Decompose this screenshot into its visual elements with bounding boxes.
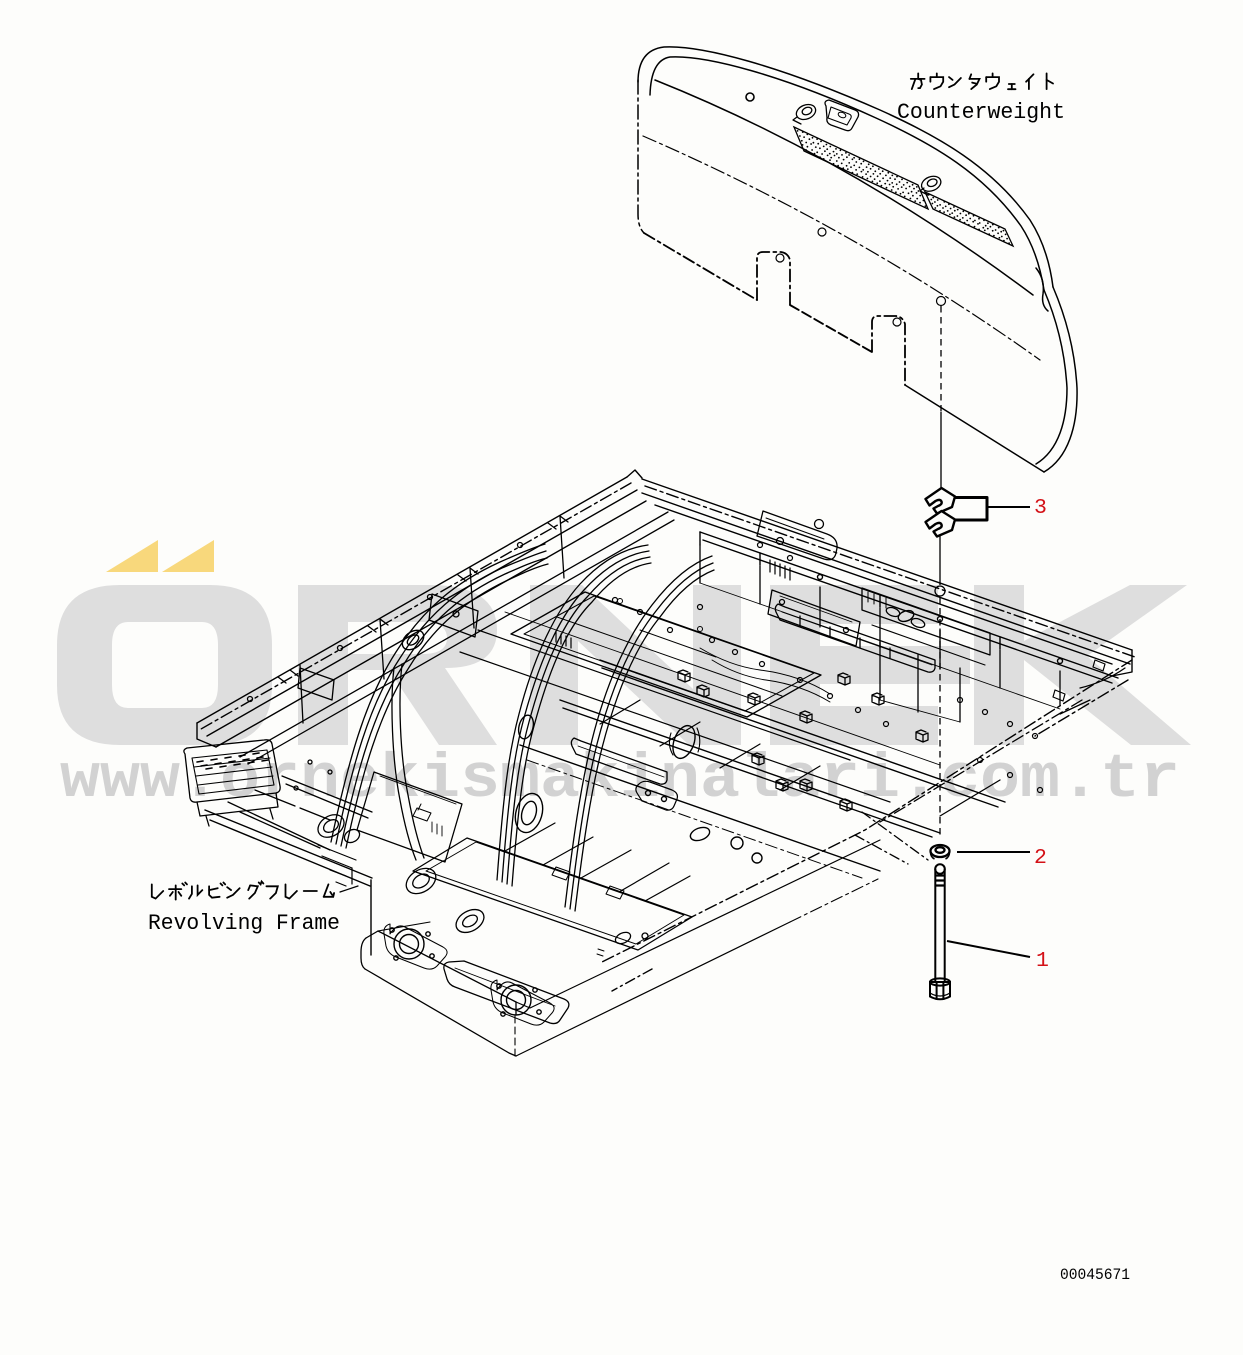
svg-text:Counterweight: Counterweight xyxy=(897,100,1065,125)
svg-text:3: 3 xyxy=(1034,496,1047,520)
svg-text:00045671: 00045671 xyxy=(1060,1266,1130,1284)
svg-text:Revolving Frame: Revolving Frame xyxy=(148,911,340,936)
svg-text:2: 2 xyxy=(1034,846,1047,870)
svg-text:1: 1 xyxy=(1036,949,1049,973)
